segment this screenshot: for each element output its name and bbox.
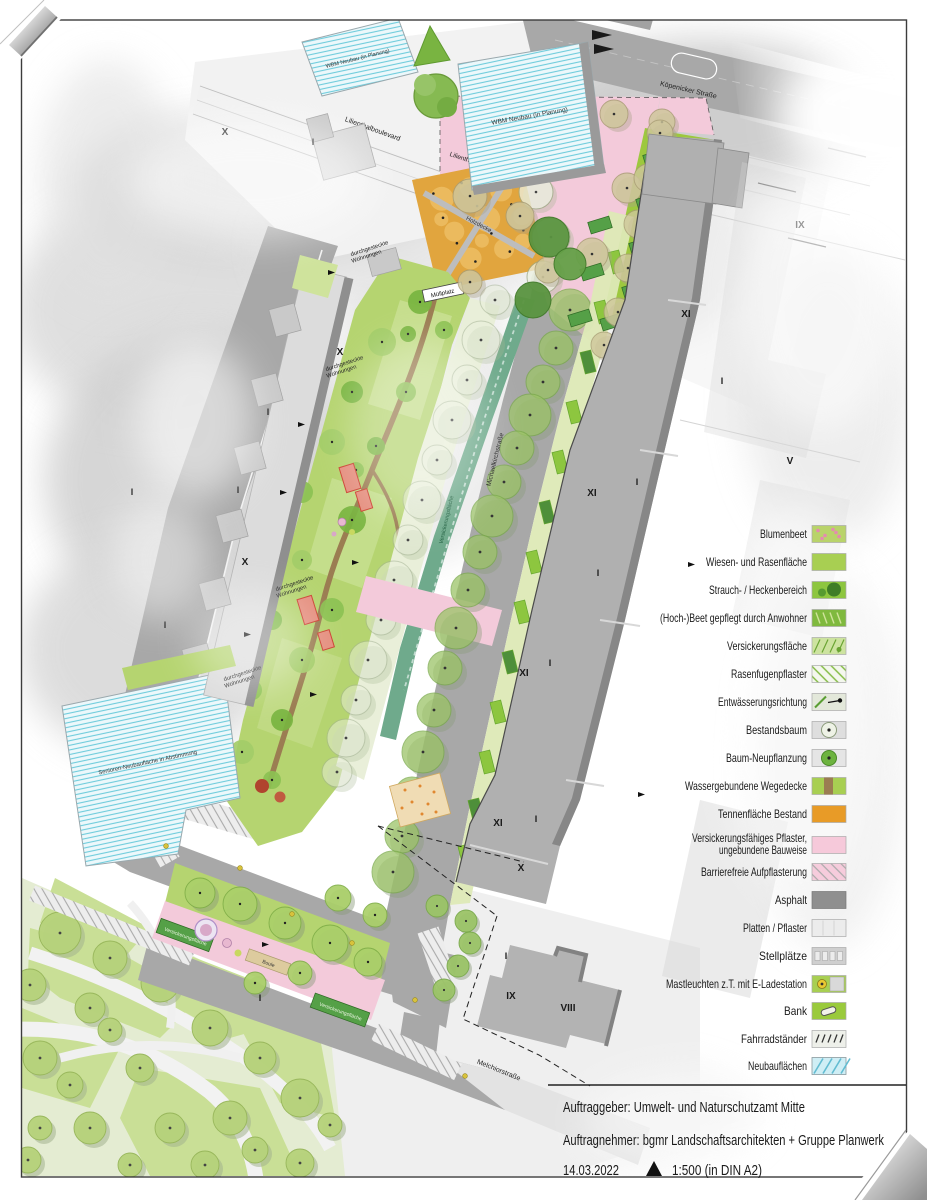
svg-text:I: I [636, 477, 639, 487]
svg-text:Platten / Pflaster: Platten / Pflaster [743, 921, 807, 935]
svg-text:XI: XI [587, 488, 597, 499]
svg-text:I: I [237, 485, 240, 495]
svg-text:I: I [597, 568, 600, 578]
svg-text:Asphalt: Asphalt [775, 893, 808, 907]
svg-text:Entwässerungsrichtung: Entwässerungsrichtung [718, 695, 807, 709]
svg-text:X: X [337, 347, 344, 358]
svg-text:Barrierefreie Aufpflasterung: Barrierefreie Aufpflasterung [701, 865, 807, 879]
svg-text:I: I [131, 487, 134, 497]
svg-text:I: I [505, 951, 508, 961]
svg-text:V: V [787, 456, 794, 467]
svg-text:XI: XI [681, 309, 691, 320]
svg-text:Stellplätze: Stellplätze [759, 949, 807, 963]
svg-text:Versickerungsfläche: Versickerungsfläche [727, 639, 807, 653]
svg-text:(Hoch-)Beet gepflegt durch Anw: (Hoch-)Beet gepflegt durch Anwohner [660, 611, 807, 625]
svg-text:1:500 (in DIN A2): 1:500 (in DIN A2) [672, 1163, 762, 1179]
svg-text:X: X [242, 557, 249, 568]
svg-text:Bank: Bank [784, 1004, 808, 1018]
svg-text:Neubauflächen: Neubauflächen [748, 1059, 807, 1073]
svg-text:ungebundene Bauweise: ungebundene Bauweise [719, 843, 807, 857]
svg-text:I: I [267, 407, 270, 417]
svg-text:IX: IX [506, 991, 516, 1002]
svg-text:Strauch- / Heckenbereich: Strauch- / Heckenbereich [709, 583, 807, 597]
svg-text:VIII: VIII [560, 1003, 575, 1014]
svg-text:XI: XI [493, 818, 503, 829]
svg-text:Bestandsbaum: Bestandsbaum [746, 723, 807, 737]
svg-text:I: I [721, 376, 724, 386]
svg-text:Blumenbeet: Blumenbeet [760, 527, 807, 541]
svg-text:Auftraggeber: Umwelt- und Natu: Auftraggeber: Umwelt- und Naturschutzamt… [563, 1100, 805, 1116]
svg-text:Tennenfläche Bestand: Tennenfläche Bestand [718, 807, 807, 821]
svg-text:Rasenfugenpflaster: Rasenfugenpflaster [731, 667, 807, 681]
svg-text:Baum-Neupflanzung: Baum-Neupflanzung [726, 751, 807, 765]
svg-text:X: X [518, 863, 525, 874]
svg-text:I: I [164, 620, 167, 630]
svg-text:Wiesen- und Rasenfläche: Wiesen- und Rasenfläche [706, 555, 807, 569]
svg-text:I: I [259, 993, 262, 1003]
svg-text:Mastleuchten z.T. mit E-Ladest: Mastleuchten z.T. mit E-Ladestation [666, 977, 807, 991]
svg-text:I: I [549, 658, 552, 668]
svg-text:I: I [535, 814, 538, 824]
svg-text:Fahrradständer: Fahrradständer [741, 1032, 807, 1046]
svg-text:14.03.2022: 14.03.2022 [563, 1163, 619, 1179]
svg-text:Wassergebundene Wegedecke: Wassergebundene Wegedecke [685, 779, 807, 793]
svg-text:Auftragnehmer: bgmr Landschaft: Auftragnehmer: bgmr Landschaftsarchitekt… [563, 1133, 885, 1149]
svg-text:XI: XI [519, 668, 529, 679]
